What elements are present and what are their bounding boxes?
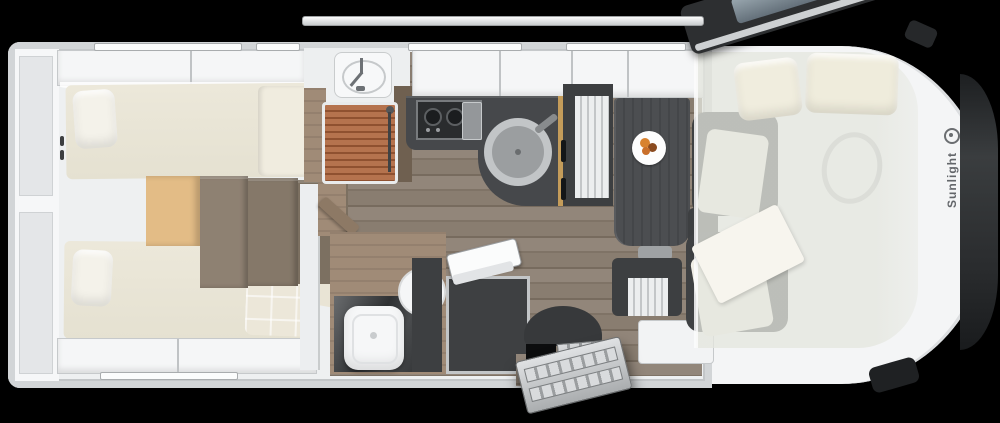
hood-branding: Sunlight bbox=[938, 128, 966, 292]
rear-garage-upper bbox=[19, 56, 53, 196]
brand-label: Sunlight bbox=[945, 152, 959, 208]
fridge-handle bbox=[561, 178, 566, 200]
hob-knob bbox=[436, 128, 440, 132]
locker-divider bbox=[190, 51, 192, 85]
grab-handle-icon bbox=[60, 150, 64, 160]
hob-knob bbox=[426, 128, 430, 132]
overhead-lockers-bottom bbox=[57, 338, 317, 374]
awning-rail bbox=[302, 16, 704, 26]
bed-step-platform bbox=[146, 176, 200, 246]
mirror-top bbox=[903, 19, 939, 49]
pillow-bottom-bed bbox=[71, 249, 114, 307]
window-bar-top bbox=[256, 43, 300, 51]
drop-bed-pillow-left bbox=[733, 56, 804, 121]
floorplan-canvas: Sunlight bbox=[0, 0, 1000, 423]
fridge-handle bbox=[561, 140, 566, 162]
toilet-cabinet-column bbox=[412, 258, 442, 372]
sink-drain bbox=[515, 149, 521, 155]
locker-divider bbox=[177, 339, 179, 373]
window-bar-bottom bbox=[100, 372, 238, 380]
fridge-door-panel bbox=[575, 96, 609, 198]
wardrobe-side bbox=[300, 184, 320, 370]
window-bar-top bbox=[408, 43, 522, 51]
hob bbox=[416, 100, 482, 140]
step-1 bbox=[200, 176, 248, 288]
window-bar-top bbox=[566, 43, 686, 51]
dinette-table bbox=[614, 98, 690, 246]
drop-down-bed-edge bbox=[694, 52, 698, 348]
locker-divider bbox=[499, 51, 501, 97]
pillow-top-bed bbox=[72, 89, 118, 150]
brand-logo-icon bbox=[944, 128, 960, 144]
shower-tray bbox=[322, 102, 398, 184]
food-plate-icon bbox=[632, 131, 666, 165]
hob-lid bbox=[462, 102, 482, 140]
drop-bed-pillow-right bbox=[805, 52, 899, 115]
flush-button bbox=[370, 332, 377, 339]
overhead-lockers-top bbox=[57, 50, 305, 86]
burner bbox=[424, 108, 442, 126]
step-2 bbox=[248, 178, 298, 286]
locker-divider bbox=[627, 51, 629, 97]
toilet bbox=[344, 306, 404, 370]
rear-garage-lower bbox=[19, 212, 53, 374]
bench-front-panel bbox=[628, 278, 668, 316]
kitchen-overhead-lockers bbox=[412, 50, 704, 98]
window-bar-top bbox=[94, 43, 242, 51]
faucet-icon bbox=[352, 56, 370, 94]
shower-rail bbox=[388, 112, 391, 172]
grab-handle-icon bbox=[60, 136, 64, 146]
